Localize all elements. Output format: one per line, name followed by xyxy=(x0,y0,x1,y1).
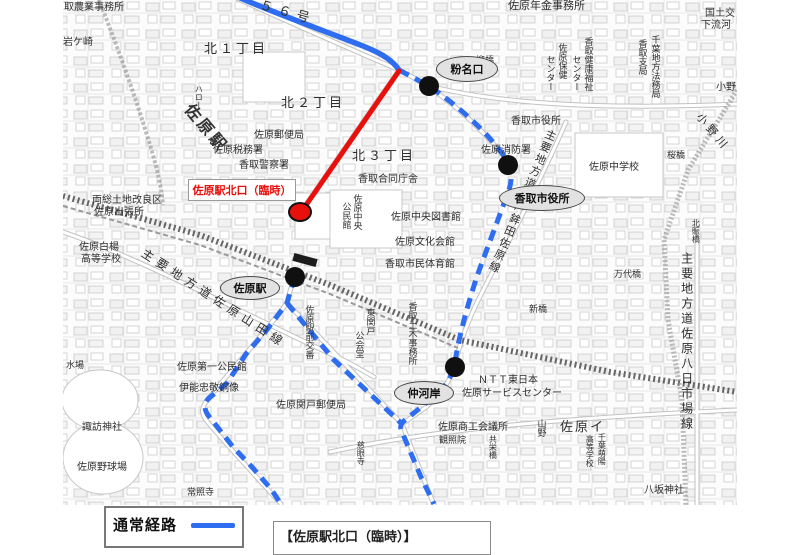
legend-box-normal-route: 通常経路 xyxy=(104,506,244,548)
bus-stop-dot xyxy=(419,76,439,96)
stop-name-bubble: 仲河岸 xyxy=(394,381,454,405)
route-map-page: 取農業事務所佐原年金事務所国土交下流河岩ケ崎北１丁目北２丁目北３丁目５６号柳橋香… xyxy=(0,0,800,533)
stop-name-bubble: 香取市役所 xyxy=(499,185,585,211)
temporary-stop-label: 佐原駅北口（臨時） xyxy=(188,179,296,201)
map-image: 取農業事務所佐原年金事務所国土交下流河岩ケ崎北１丁目北２丁目北３丁目５６号柳橋香… xyxy=(63,0,737,505)
notice-box: 【佐原駅北口（臨時）】 xyxy=(273,521,491,555)
legend-normal-route-swatch xyxy=(191,523,235,528)
map-markers-layer: 粉名口佐原駅香取市役所仲河岸佐原駅北口（臨時） xyxy=(63,0,737,505)
stop-name-bubble: 粉名口 xyxy=(436,56,498,82)
bus-stop-dot xyxy=(498,155,518,175)
notice-partial-text: 【佐原駅北口（臨時）】 xyxy=(280,529,417,544)
bus-stop-dot xyxy=(285,267,305,287)
bus-stop-dot xyxy=(445,357,465,377)
legend-normal-route-label: 通常経路 xyxy=(113,514,177,535)
stop-name-bubble: 佐原駅 xyxy=(220,276,280,300)
temporary-stop-marker xyxy=(288,202,312,222)
